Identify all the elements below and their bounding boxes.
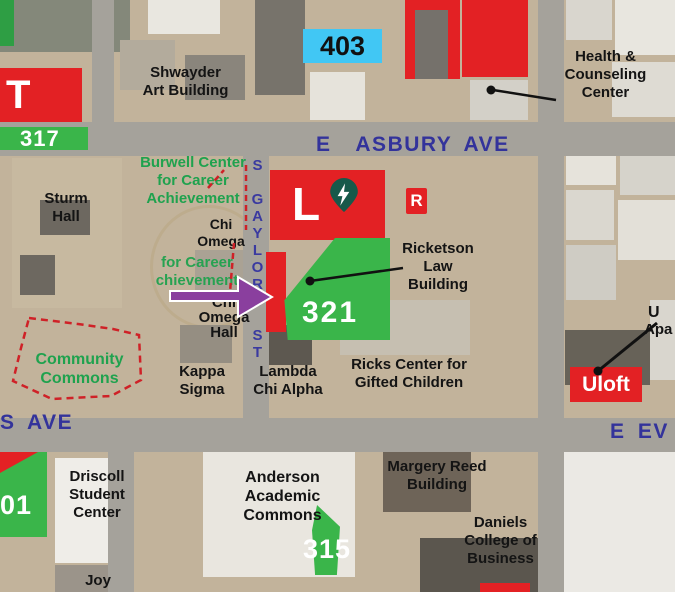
lot-t-label: T <box>6 70 31 120</box>
lot-315-label: 315 <box>303 534 351 565</box>
uloft-ref-label-2: Apa <box>644 321 675 339</box>
r-marker[interactable]: R <box>406 188 427 214</box>
street-evans-right: E EV <box>610 420 669 444</box>
ricketson-label: Ricketson Law Building <box>394 240 482 294</box>
r-marker-label: R <box>410 191 422 211</box>
green-corner-lot[interactable] <box>0 0 14 46</box>
health-label: Health & Counseling Center <box>543 48 668 102</box>
street-evans-left: S AVE <box>0 411 73 435</box>
street-asbury: E ASBURY AVE <box>316 133 510 157</box>
lot-317[interactable]: 317 <box>0 127 88 150</box>
red-building-b[interactable] <box>462 0 528 77</box>
red-strip[interactable] <box>266 252 286 332</box>
red-partial-bottom[interactable] <box>480 583 530 592</box>
red-building-a-notch <box>415 10 448 79</box>
driscoll-label: Driscoll Student Center <box>52 468 142 522</box>
building <box>566 245 616 300</box>
lot-01-label: 01 <box>0 490 32 521</box>
daniels-label: Daniels College of Business <box>448 514 553 568</box>
road-evans <box>0 418 675 452</box>
burwell-ghost-label: for Career chievement <box>145 254 249 290</box>
shwayder-label: Shwayder Art Building <box>128 64 243 100</box>
uloft-ref-label-1: U <box>648 303 675 322</box>
kappa-sigma-label: Kappa Sigma <box>172 363 232 399</box>
margery-label: Margery Reed Building <box>378 458 496 494</box>
building <box>566 0 612 40</box>
chi-omega-label: Chi Omega <box>196 216 246 250</box>
sturm-label: Sturm Hall <box>20 190 112 226</box>
road-topleft <box>92 0 114 122</box>
burwell-label: Burwell Center for Career Achievement <box>132 154 254 208</box>
campus-map: T 317 403 L R 321 Uloft 01 315 E ASBURY … <box>0 0 675 592</box>
l-building[interactable]: L <box>270 170 385 240</box>
ev-charging-pin-icon[interactable] <box>330 178 358 212</box>
joy-label: Joy <box>78 572 118 590</box>
building <box>470 80 528 120</box>
building <box>615 0 675 55</box>
lot-321-label: 321 <box>302 296 358 330</box>
lot-t[interactable]: T <box>0 68 82 122</box>
building <box>310 72 365 120</box>
l-building-label: L <box>292 174 321 234</box>
lot-403[interactable]: 403 <box>303 29 382 63</box>
lot-317-label: 317 <box>20 127 60 151</box>
building <box>148 0 220 34</box>
red-building-a[interactable] <box>405 0 460 79</box>
chi-omega-hall-label: Chi Omega Hall <box>196 295 252 340</box>
building <box>566 190 614 240</box>
building <box>558 452 675 592</box>
lambda-chi-label: Lambda Chi Alpha <box>248 363 328 399</box>
uloft-marker[interactable]: Uloft <box>570 367 642 402</box>
building <box>618 200 675 260</box>
community-commons-label: Community Commons <box>22 350 137 388</box>
building <box>20 255 55 295</box>
uloft-label: Uloft <box>582 373 630 397</box>
anderson-label: Anderson Academic Commons <box>215 468 350 526</box>
building <box>255 0 305 95</box>
lot-403-label: 403 <box>320 31 365 62</box>
ricks-label: Ricks Center for Gifted Children <box>345 356 473 392</box>
